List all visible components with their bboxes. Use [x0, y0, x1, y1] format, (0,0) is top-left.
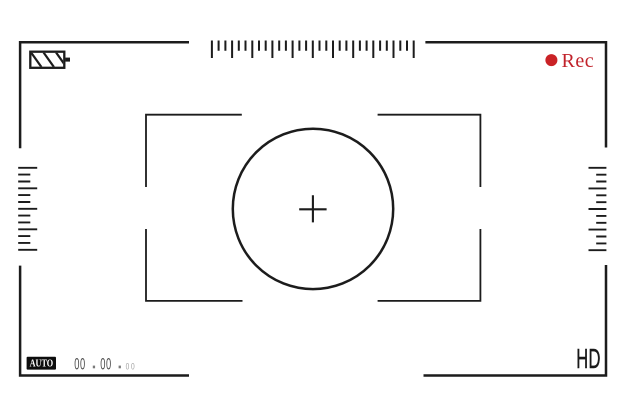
svg-text:HD: HD [576, 342, 600, 374]
svg-text:00: 00 [100, 354, 111, 373]
svg-text:00: 00 [74, 354, 85, 373]
svg-text:00: 00 [126, 361, 137, 371]
svg-text:Rec: Rec [562, 50, 595, 72]
svg-text:AUTO: AUTO [30, 358, 54, 369]
